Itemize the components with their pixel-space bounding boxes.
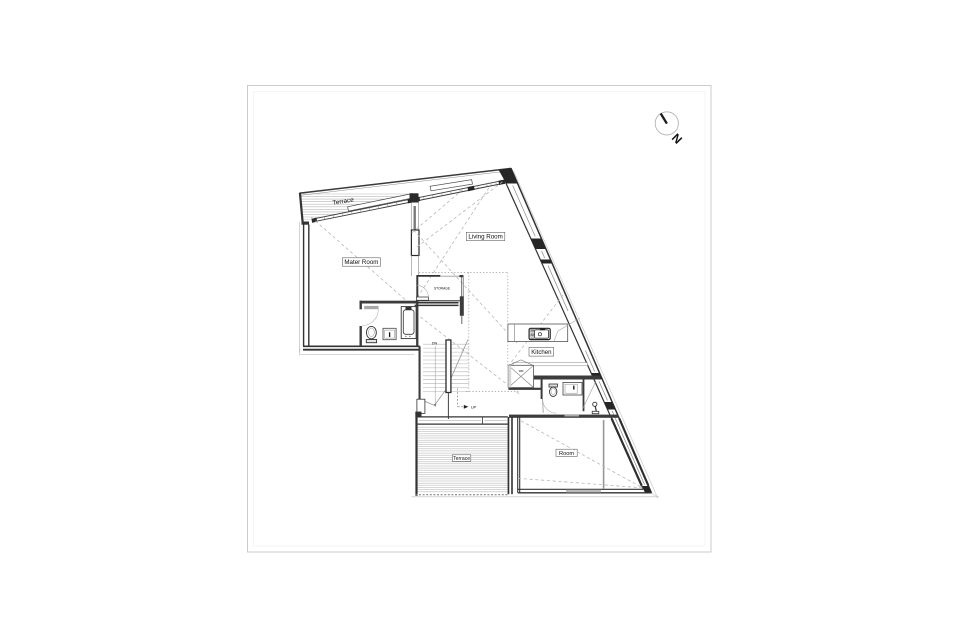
svg-text:Kitchen: Kitchen (531, 349, 551, 356)
svg-text:WR.: WR. (519, 369, 525, 373)
svg-text:STORAGE: STORAGE (434, 286, 451, 290)
svg-text:Room: Room (559, 451, 574, 457)
svg-text:UP: UP (471, 406, 477, 410)
svg-text:DN: DN (432, 341, 438, 345)
svg-text:Terrace: Terrace (453, 456, 470, 462)
svg-text:Living Room: Living Room (468, 234, 502, 241)
svg-text:Mater Room: Mater Room (344, 259, 378, 266)
